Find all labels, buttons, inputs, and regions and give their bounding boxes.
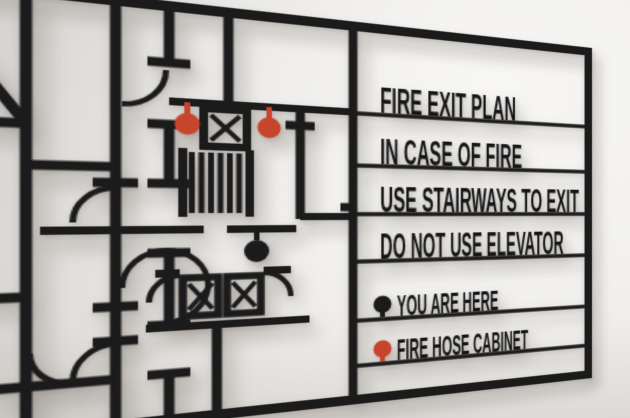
sign-line-use-stairways: USE STAIRWAYS TO EXIT [380,179,579,220]
sign-line-do-not-use-elevator: DO NOT USE ELEVATOR [380,225,564,267]
fire-exit-plan-sign: FIRE EXIT PLAN IN CASE OF FIRE USE STAIR… [0,0,592,418]
sign-line-fire-exit-plan: FIRE EXIT PLAN [380,80,516,128]
legend-fire-hose-cabinet: FIRE HOSE CABINET [373,326,528,369]
floor-plan [0,0,353,418]
legend-label-you-are-here: YOU ARE HERE [397,287,498,323]
legend-label-fire-hose-cabinet: FIRE HOSE CABINET [397,326,528,367]
red-pin-icon [373,340,391,363]
photo-wall-background: FIRE EXIT PLAN IN CASE OF FIRE USE STAIR… [0,0,630,418]
black-pin-icon [373,295,391,317]
fire-hose-pin-icon [257,106,280,138]
sign-cutout-svg: FIRE EXIT PLAN IN CASE OF FIRE USE STAIR… [0,0,592,418]
stairs-symbol [183,148,250,217]
sign-line-in-case-of-fire: IN CASE OF FIRE [380,131,522,175]
plan-walls [0,0,353,418]
you-are-here-dot [244,229,269,263]
text-panel: FIRE EXIT PLAN IN CASE OF FIRE USE STAIR… [357,78,585,370]
x-box-symbol [204,108,247,147]
stairs-hatch-lines [192,152,239,213]
